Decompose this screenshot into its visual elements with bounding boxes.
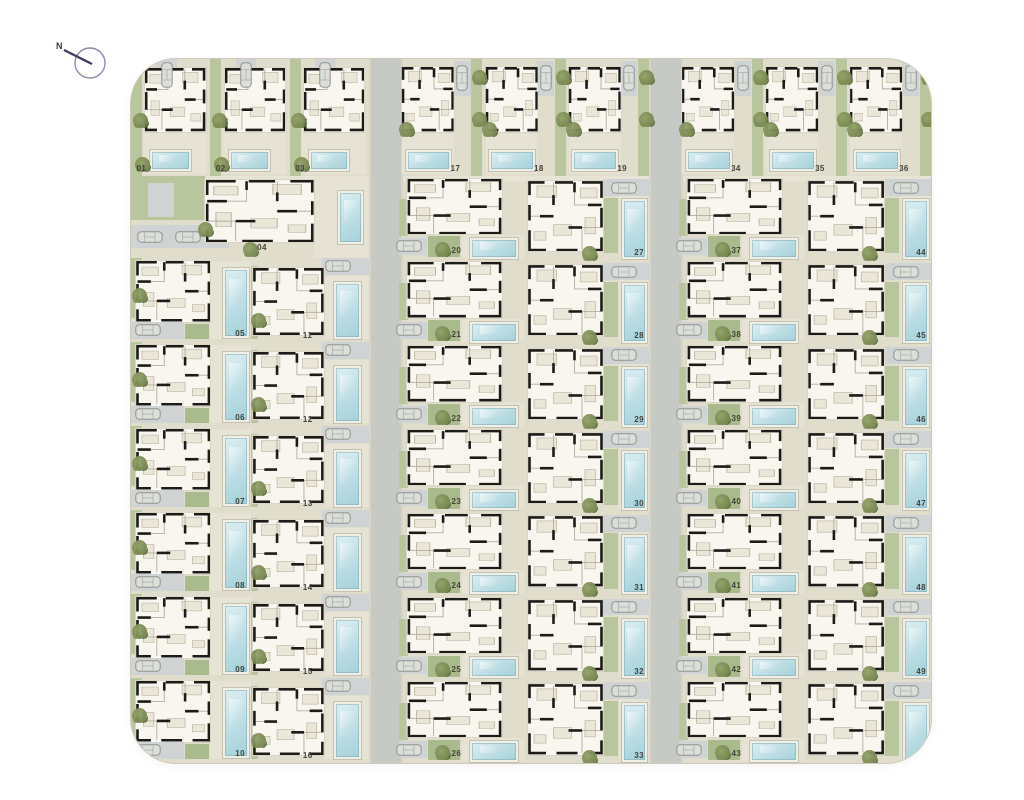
pool [150, 150, 190, 170]
car-icon [456, 65, 468, 91]
villa-plot: 43 [679, 679, 804, 763]
plot-number: 38 [732, 330, 742, 339]
floor-plan [225, 68, 285, 131]
villa-plot: 31 [524, 511, 649, 595]
villa-plot: 08 [131, 510, 251, 594]
tree-icon [837, 70, 852, 85]
tree-icon [715, 578, 730, 593]
pool [470, 490, 518, 511]
car-icon [611, 517, 637, 529]
villa-plot: 46 [804, 344, 931, 428]
villa-plot: 29 [524, 344, 649, 428]
pool [223, 604, 249, 674]
plot-number: 19 [617, 164, 627, 173]
garden-strip [604, 617, 618, 672]
plot-number: 44 [916, 248, 926, 257]
villa-plot: 41 [679, 511, 804, 595]
pool [309, 150, 349, 170]
car-icon [821, 65, 833, 91]
villa-plot: 07 [131, 426, 251, 510]
tree-icon [556, 70, 571, 85]
car-icon [676, 576, 702, 588]
pool [223, 268, 249, 338]
villa-plot: 25 [399, 595, 524, 679]
tree-icon [291, 113, 306, 128]
floor-plan [205, 180, 314, 242]
villa-plot: 22 [399, 344, 524, 428]
car-icon [676, 660, 702, 672]
floor-plan [528, 349, 603, 419]
plot-number: 10 [235, 749, 245, 758]
pool [334, 618, 362, 676]
floor-plan [766, 67, 818, 131]
floor-plan [528, 684, 603, 754]
car-icon [611, 685, 637, 697]
pool [406, 150, 452, 170]
car-icon [325, 344, 351, 356]
floor-plan [136, 429, 210, 489]
villa-plot: 09 [131, 594, 251, 678]
pool [470, 741, 518, 762]
car-icon [623, 65, 635, 91]
villa-plot: 17 [399, 59, 482, 176]
plot-number: 17 [451, 164, 461, 173]
villa-plot: 26 [399, 679, 524, 763]
villa-plot: 27 [524, 176, 649, 260]
floor-plan [136, 681, 210, 741]
villa-plot: 02 [210, 59, 289, 176]
garden [185, 744, 209, 760]
floor-plan [687, 598, 782, 653]
villa-plot: 48 [804, 511, 931, 595]
plot-number: 32 [634, 667, 644, 676]
garden-strip [885, 198, 899, 253]
compass: N [50, 36, 120, 92]
floor-plan [682, 67, 734, 131]
plot-number: 06 [235, 413, 245, 422]
tree-icon [639, 70, 654, 85]
villa-plot: 16 [251, 678, 369, 762]
villa-plot: 34 [679, 59, 763, 176]
villa-plot: 03 [290, 59, 369, 176]
plot-number: 05 [235, 329, 245, 338]
villa-plot: 20 [399, 176, 524, 260]
pool [750, 741, 798, 762]
garden [185, 492, 209, 508]
pool [572, 150, 618, 170]
villa-plot: 45 [804, 260, 931, 344]
pool [470, 238, 518, 259]
plot-number: 16 [303, 751, 313, 760]
pool [334, 534, 362, 592]
floor-plan [486, 67, 538, 131]
car-icon [676, 240, 702, 252]
pool [334, 366, 362, 424]
plot-number: 20 [452, 246, 462, 255]
tree-icon [715, 662, 730, 677]
pool [750, 322, 798, 343]
plot-number: 29 [634, 415, 644, 424]
car-icon [135, 660, 161, 672]
plot-number: 22 [452, 414, 462, 423]
villa-plot: 47 [804, 428, 931, 512]
pool [770, 150, 816, 170]
car-icon [893, 433, 919, 445]
floor-plan [687, 346, 782, 401]
car-icon [325, 680, 351, 692]
car-icon [611, 349, 637, 361]
plot-number: 18 [534, 164, 544, 173]
car-icon [396, 240, 422, 252]
floor-plan [407, 598, 502, 653]
villa-plot: 04 [131, 176, 369, 258]
villa-plot: 44 [804, 176, 931, 260]
plot-number: 08 [235, 581, 245, 590]
plot-number: 48 [916, 583, 926, 592]
floor-plan [407, 346, 502, 401]
car-icon [325, 512, 351, 524]
villa-plot: 36 [847, 59, 931, 176]
tree-icon [198, 222, 213, 237]
plot-number: 24 [452, 581, 462, 590]
pool [470, 657, 518, 678]
garden-strip [885, 282, 899, 337]
car-icon [611, 433, 637, 445]
garden-strip [604, 533, 618, 588]
plot-number: 45 [916, 331, 926, 340]
car-icon [893, 601, 919, 613]
plot-number: 09 [235, 665, 245, 674]
floor-plan [808, 181, 884, 251]
pool [750, 657, 798, 678]
car-icon [135, 492, 161, 504]
tree-icon [715, 494, 730, 509]
car-icon [893, 685, 919, 697]
pool [223, 688, 249, 758]
villa-plot: 13 [251, 426, 369, 510]
garden-strip [604, 282, 618, 337]
floor-plan [808, 433, 884, 503]
pool [686, 150, 732, 170]
plot-number: 21 [452, 330, 462, 339]
pool [470, 322, 518, 343]
car-icon [135, 744, 161, 756]
floor-plan [687, 430, 782, 485]
pool [750, 573, 798, 594]
floor-plan [407, 514, 502, 569]
car-icon [396, 324, 422, 336]
car-icon [137, 231, 163, 243]
tree-icon [639, 112, 654, 127]
floor-plan [687, 514, 782, 569]
tree-icon [566, 122, 581, 137]
plot-number: 41 [732, 581, 742, 590]
pool [750, 238, 798, 259]
plot-number: 34 [731, 164, 741, 173]
plot-number: 31 [634, 583, 644, 592]
plot-number: 43 [732, 749, 742, 758]
villa-plot: 37 [679, 176, 804, 260]
plot-number: 02 [216, 164, 226, 173]
plot-number: 27 [634, 248, 644, 257]
floor-plan [850, 67, 902, 131]
plot-number: 23 [452, 497, 462, 506]
car-icon [676, 324, 702, 336]
plot-number: 04 [257, 243, 267, 252]
floor-plan [407, 179, 502, 234]
floor-plan [808, 684, 884, 754]
plot-number: 42 [732, 665, 742, 674]
car-icon [325, 260, 351, 272]
car-icon [737, 65, 749, 91]
car-icon [396, 660, 422, 672]
floor-plan [407, 262, 502, 317]
floor-plan [136, 345, 210, 405]
pool [470, 406, 518, 427]
pool [223, 520, 249, 590]
villa-plot: 33 [524, 679, 649, 763]
tree-icon [243, 242, 258, 257]
car-icon [893, 349, 919, 361]
plot-number: 30 [634, 499, 644, 508]
garden-strip [604, 449, 618, 504]
pool [750, 490, 798, 511]
car-icon [396, 576, 422, 588]
plot-number: 13 [303, 499, 313, 508]
tree-icon [862, 750, 877, 764]
car-icon [135, 408, 161, 420]
car-icon [611, 266, 637, 278]
garden-strip [604, 701, 618, 756]
villa-plot: 12 [251, 342, 369, 426]
car-icon [161, 62, 173, 88]
pool [334, 450, 362, 508]
tree-icon [582, 498, 597, 513]
plot-number: 07 [235, 497, 245, 506]
car-icon [240, 62, 252, 88]
pool [229, 150, 269, 170]
garden [185, 576, 209, 592]
tree-icon [753, 70, 768, 85]
tree-icon [921, 112, 932, 127]
garden [185, 324, 209, 340]
villa-plot: 30 [524, 428, 649, 512]
garden-strip [604, 198, 618, 253]
tree-icon [212, 113, 227, 128]
villa-plot: 23 [399, 428, 524, 512]
villa-plot: 49 [804, 595, 931, 679]
plot-number: 47 [916, 499, 926, 508]
floor-plan [407, 430, 502, 485]
compass-north-label: N [56, 41, 63, 51]
floor-plan [136, 513, 210, 573]
villa-plot: 32 [524, 595, 649, 679]
tree-icon [582, 246, 597, 261]
tree-icon [435, 578, 450, 593]
car-icon [893, 182, 919, 194]
plot-number: 50 [916, 751, 926, 760]
floor-plan [687, 179, 782, 234]
tree-icon [435, 662, 450, 677]
car-icon [676, 744, 702, 756]
car-icon [396, 744, 422, 756]
floor-plan [402, 67, 454, 131]
car-icon [893, 517, 919, 529]
car-icon [135, 324, 161, 336]
floor-plan [808, 349, 884, 419]
tree-icon [582, 582, 597, 597]
floor-plan [528, 516, 603, 586]
garden [185, 408, 209, 424]
floor-plan [528, 433, 603, 503]
pool [854, 150, 900, 170]
car-icon [905, 65, 917, 91]
plot-number: 28 [634, 331, 644, 340]
villa-plot: 06 [131, 342, 251, 426]
car-icon [611, 601, 637, 613]
car-icon [676, 492, 702, 504]
garden-strip [885, 366, 899, 421]
parking-pad [148, 183, 174, 217]
plot-number: 14 [303, 583, 313, 592]
plot-number: 26 [452, 749, 462, 758]
tree-icon [582, 666, 597, 681]
tree-icon [435, 494, 450, 509]
car-icon [175, 231, 201, 243]
villa-plot: 28 [524, 260, 649, 344]
tree-icon [472, 70, 487, 85]
pool [750, 406, 798, 427]
garden-strip [604, 366, 618, 421]
villa-plot: 35 [763, 59, 847, 176]
car-icon [540, 65, 552, 91]
car-icon [325, 596, 351, 608]
garden [185, 660, 209, 676]
villa-plot: 10 [131, 678, 251, 762]
car-icon [611, 182, 637, 194]
floor-plan [407, 682, 502, 737]
villa-plot: 05 [131, 258, 251, 342]
villa-plot: 39 [679, 344, 804, 428]
floor-plan [528, 181, 603, 251]
car-icon [319, 62, 331, 88]
pool [470, 573, 518, 594]
villa-plot: 40 [679, 428, 804, 512]
car-icon [135, 576, 161, 588]
floor-plan [136, 261, 210, 321]
villa-plot: 01 [131, 59, 210, 176]
car-icon [396, 492, 422, 504]
garden-strip [885, 617, 899, 672]
floor-plan [528, 265, 603, 335]
pool [334, 702, 362, 760]
villa-plot: 18 [482, 59, 565, 176]
tree-icon [921, 70, 932, 85]
plot-number: 25 [452, 665, 462, 674]
villa-plot: 38 [679, 260, 804, 344]
tree-icon [133, 113, 148, 128]
garden-strip [885, 533, 899, 588]
pool [489, 150, 535, 170]
pool [334, 282, 362, 340]
plot-number: 11 [303, 331, 312, 340]
floor-plan [136, 597, 210, 657]
car-icon [396, 408, 422, 420]
plot-number: 49 [916, 667, 926, 676]
garden-strip [885, 701, 899, 756]
plot-number: 36 [899, 164, 909, 173]
floor-plan [687, 262, 782, 317]
garden-strip [885, 449, 899, 504]
villa-plot: 24 [399, 511, 524, 595]
floor-plan [304, 68, 364, 131]
villa-plot: 50 [804, 679, 931, 763]
floor-plan [145, 68, 205, 131]
plot-number: 37 [732, 246, 742, 255]
pool [338, 191, 363, 244]
villa-plot: 15 [251, 594, 369, 678]
pool [223, 352, 249, 422]
plot-number: 01 [137, 164, 147, 173]
plot-number: 46 [916, 415, 926, 424]
floor-plan [528, 600, 603, 670]
villa-plot: 14 [251, 510, 369, 594]
tree-icon [582, 750, 597, 764]
villa-plot: 11 [251, 258, 369, 342]
villa-plot: 21 [399, 260, 524, 344]
masterplan-area: 01 02 03 17 18 19 34 35 36 04 05 06 07 0… [130, 58, 932, 764]
floor-plan [687, 682, 782, 737]
plot-number: 15 [303, 667, 313, 676]
site-plan-canvas: N 01 02 03 17 18 19 34 35 36 04 05 06 [0, 0, 1024, 800]
floor-plan [808, 600, 884, 670]
tree-icon [582, 330, 597, 345]
plot-number: 33 [634, 751, 644, 760]
car-icon [893, 266, 919, 278]
car-icon [325, 428, 351, 440]
pool [223, 436, 249, 506]
tree-icon [582, 414, 597, 429]
floor-plan [808, 516, 884, 586]
plot-number: 03 [295, 164, 305, 173]
car-icon [676, 408, 702, 420]
villa-plot: 19 [566, 59, 649, 176]
plot-number: 35 [815, 164, 825, 173]
floor-plan [808, 265, 884, 335]
plot-number: 40 [732, 497, 742, 506]
villa-plot: 42 [679, 595, 804, 679]
plot-number: 39 [732, 414, 742, 423]
plot-number: 12 [303, 415, 313, 424]
